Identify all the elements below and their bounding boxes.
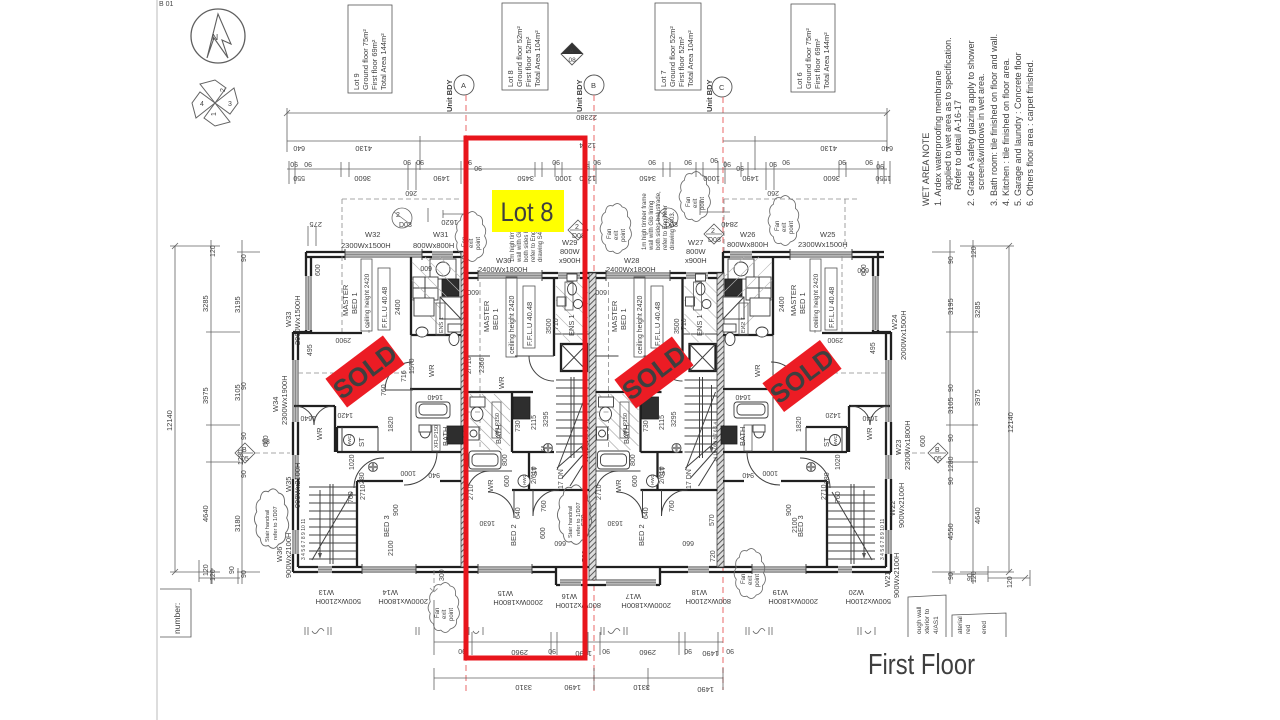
svg-text:570: 570 — [709, 514, 716, 526]
svg-text:1490: 1490 — [697, 685, 714, 694]
svg-text:22380: 22380 — [576, 113, 597, 122]
svg-text:12140: 12140 — [1006, 412, 1015, 433]
svg-text:BATH: BATH — [738, 427, 747, 446]
svg-text:1000: 1000 — [555, 174, 572, 183]
svg-text:D08: D08 — [708, 237, 721, 244]
svg-text:17 DN: 17 DN — [558, 469, 565, 489]
svg-text:3450: 3450 — [517, 174, 534, 183]
svg-text:W32: W32 — [365, 230, 380, 239]
svg-text:Fan: Fan — [775, 221, 781, 231]
svg-text:2900: 2900 — [335, 336, 351, 343]
svg-text:2400: 2400 — [779, 296, 786, 312]
svg-text:90: 90 — [474, 164, 482, 171]
svg-text:W31: W31 — [433, 230, 448, 239]
svg-text:1020: 1020 — [835, 454, 842, 470]
svg-text:500Wx2100H: 500Wx2100H — [316, 597, 361, 606]
svg-text:90: 90 — [948, 477, 955, 485]
svg-text:800Wx2100H: 800Wx2100H — [686, 597, 731, 606]
svg-text:640: 640 — [881, 144, 893, 151]
svg-text:2366: 2366 — [479, 357, 486, 373]
svg-text:120: 120 — [1007, 576, 1014, 588]
svg-text:point: point — [621, 229, 627, 242]
svg-text:2300Wx1900H: 2300Wx1900H — [280, 375, 289, 425]
svg-text:640: 640 — [515, 507, 522, 519]
svg-text:1: 1 — [211, 112, 218, 116]
svg-text:280: 280 — [824, 472, 831, 484]
svg-text:Lot 7: Lot 7 — [659, 70, 668, 87]
svg-text:3195: 3195 — [233, 296, 242, 313]
svg-text:760: 760 — [348, 491, 355, 503]
svg-text:point: point — [700, 197, 706, 210]
svg-text:300: 300 — [439, 569, 446, 581]
svg-text:Fan: Fan — [741, 574, 747, 584]
svg-text:Fan: Fan — [607, 229, 613, 239]
svg-text:3310: 3310 — [515, 683, 532, 692]
svg-text:both sides balustrade,: both sides balustrade, — [656, 191, 662, 250]
svg-text:BED 1: BED 1 — [491, 308, 500, 330]
svg-text:1630: 1630 — [479, 519, 495, 526]
svg-text:A: A — [461, 81, 466, 90]
svg-text:2000Wx1500H: 2000Wx1500H — [293, 295, 302, 345]
svg-text:900Wx2100H: 900Wx2100H — [293, 463, 302, 508]
svg-text:90: 90 — [552, 158, 560, 165]
svg-text:HWC: HWC — [650, 474, 655, 485]
svg-text:3975: 3975 — [201, 387, 210, 404]
svg-text:90: 90 — [726, 647, 734, 654]
svg-text:90: 90 — [736, 164, 744, 171]
svg-text:3: 3 — [228, 101, 232, 108]
svg-text:wall with Gib lining: wall with Gib lining — [649, 201, 655, 251]
svg-text:WR: WR — [497, 376, 506, 389]
svg-text:HWC: HWC — [833, 435, 838, 446]
svg-text:3 4 5 6 7 8 9 10 11: 3 4 5 6 7 8 9 10 11 — [301, 518, 307, 560]
svg-text:90: 90 — [948, 384, 955, 392]
svg-text:1820: 1820 — [388, 416, 395, 432]
svg-text:1820: 1820 — [796, 416, 803, 432]
svg-text:600: 600 — [467, 288, 479, 295]
svg-text:B: B — [935, 447, 940, 454]
svg-text:4550: 4550 — [946, 523, 955, 540]
svg-text:720: 720 — [710, 550, 717, 562]
svg-text:F.F.L.U 40.48: F.F.L.U 40.48 — [829, 287, 836, 328]
svg-text:90: 90 — [304, 160, 312, 167]
svg-text:90: 90 — [948, 256, 955, 264]
svg-text:760: 760 — [835, 491, 842, 503]
svg-text:600: 600 — [920, 435, 927, 447]
svg-text:W34: W34 — [271, 397, 280, 412]
svg-text:90: 90 — [967, 573, 974, 581]
svg-text:760: 760 — [381, 384, 388, 396]
svg-text:4130: 4130 — [355, 144, 372, 153]
svg-text:ough wall: ough wall — [916, 606, 923, 634]
svg-text:800: 800 — [502, 454, 509, 466]
svg-text:XFLP150: XFLP150 — [623, 413, 629, 436]
svg-text:W16: W16 — [562, 592, 577, 601]
svg-text:3. Bath room: tile finished: 3. Bath room: tile finished on floor and… — [989, 34, 999, 206]
svg-text:1640: 1640 — [735, 393, 751, 400]
svg-text:F.F.L.U 40.48: F.F.L.U 40.48 — [525, 302, 534, 346]
svg-text:W33: W33 — [284, 312, 293, 327]
svg-text:600: 600 — [315, 264, 322, 276]
svg-text:W22: W22 — [888, 501, 897, 516]
svg-text:W24: W24 — [890, 315, 899, 330]
svg-text:2: 2 — [220, 88, 227, 92]
svg-text:4130: 4130 — [820, 144, 837, 153]
svg-text:WR: WR — [865, 427, 874, 440]
svg-text:WR: WR — [427, 364, 436, 377]
svg-text:ENS 1: ENS 1 — [439, 317, 445, 333]
svg-text:4. Kitchen : tile finished o: 4. Kitchen : tile finished on floor area… — [1001, 58, 1011, 206]
svg-text:3285: 3285 — [201, 295, 210, 312]
svg-text:exit: exit — [442, 609, 448, 619]
svg-text:600: 600 — [420, 264, 432, 271]
svg-text:90: 90 — [416, 158, 424, 165]
svg-text:MASTER: MASTER — [482, 300, 491, 332]
svg-text:1284: 1284 — [579, 141, 596, 150]
svg-text:Total Area 104m²: Total Area 104m² — [686, 30, 695, 87]
svg-text:600: 600 — [504, 475, 511, 487]
svg-text:2400Wx1800H: 2400Wx1800H — [606, 265, 656, 274]
svg-text:WR: WR — [315, 427, 324, 440]
svg-text:500Wx2100H: 500Wx2100H — [846, 597, 891, 606]
svg-text:2300Wx1800H: 2300Wx1800H — [903, 420, 912, 470]
svg-text:B: B — [591, 81, 596, 90]
svg-text:1280: 1280 — [948, 456, 955, 472]
svg-text:3105: 3105 — [233, 384, 242, 401]
svg-text:05: 05 — [241, 456, 249, 463]
svg-text:x900H: x900H — [559, 256, 581, 265]
svg-text:800W: 800W — [686, 247, 707, 256]
svg-text:760: 760 — [669, 500, 676, 512]
svg-text:First floor 69m²: First floor 69m² — [813, 38, 822, 89]
svg-text:3975: 3975 — [973, 389, 982, 406]
svg-text:260: 260 — [405, 189, 417, 196]
svg-text:4640: 4640 — [973, 507, 982, 524]
svg-text:2710: 2710 — [360, 484, 367, 500]
svg-text:660: 660 — [682, 539, 694, 546]
svg-text:First floor 69m²: First floor 69m² — [370, 39, 379, 90]
svg-text:90: 90 — [648, 158, 656, 165]
svg-text:point: point — [789, 221, 795, 234]
svg-text:90: 90 — [241, 570, 248, 578]
svg-text:1220: 1220 — [579, 174, 596, 183]
svg-text:5. Garage and laundry : Con: 5. Garage and laundry : Concrete floor — [1013, 52, 1023, 206]
svg-text:1490: 1490 — [742, 174, 759, 183]
svg-text:3600: 3600 — [354, 174, 371, 183]
svg-text:90: 90 — [241, 470, 248, 478]
svg-text:MASTER: MASTER — [341, 284, 350, 316]
svg-text:640: 640 — [643, 507, 650, 519]
svg-text:Total Area 104m²: Total Area 104m² — [533, 30, 542, 87]
svg-text:W36: W36 — [275, 547, 284, 562]
svg-text:90: 90 — [684, 647, 692, 654]
svg-text:Total Area 144m²: Total Area 144m² — [379, 33, 388, 90]
svg-text:Lot 8: Lot 8 — [501, 197, 554, 227]
svg-text:3105: 3105 — [946, 397, 955, 414]
svg-text:90: 90 — [241, 432, 248, 440]
svg-text:W14: W14 — [383, 588, 398, 597]
svg-text:1570: 1570 — [409, 358, 416, 374]
svg-text:Lot 9: Lot 9 — [352, 73, 361, 90]
svg-text:aterial: aterial — [957, 616, 964, 634]
svg-text:2900: 2900 — [827, 336, 843, 343]
svg-text:2115: 2115 — [531, 415, 538, 430]
svg-text:2960: 2960 — [639, 648, 656, 657]
svg-text:W23: W23 — [894, 440, 903, 455]
svg-text:HWC: HWC — [347, 435, 352, 446]
svg-text:F.F.L.U 40.48: F.F.L.U 40.48 — [382, 287, 389, 328]
svg-text:2000Wx1800H: 2000Wx1800H — [621, 601, 671, 610]
svg-text:2400Wx1800H: 2400Wx1800H — [478, 265, 528, 274]
svg-text:280: 280 — [359, 472, 366, 484]
svg-text:HWC: HWC — [522, 474, 527, 485]
svg-text:point: point — [476, 237, 482, 250]
svg-text:90: 90 — [602, 647, 610, 654]
svg-text:BED 1: BED 1 — [350, 292, 359, 314]
svg-text:Ground floor 75m²: Ground floor 75m² — [804, 28, 813, 89]
svg-text:760: 760 — [541, 500, 548, 512]
svg-text:2710: 2710 — [596, 484, 603, 500]
svg-text:W26: W26 — [740, 230, 755, 239]
svg-text:900Wx2100H: 900Wx2100H — [897, 483, 906, 528]
svg-text:600: 600 — [595, 288, 607, 295]
svg-text:2400: 2400 — [395, 299, 402, 315]
svg-text:2000Wx1800H: 2000Wx1800H — [768, 597, 818, 606]
svg-text:2: 2 — [575, 224, 579, 231]
svg-text:exit: exit — [782, 222, 788, 232]
svg-text:xterior to: xterior to — [924, 608, 931, 634]
svg-text:6. Others floor area : carp: 6. Others floor area : carpet finished. — [1025, 60, 1035, 206]
svg-text:90: 90 — [241, 254, 248, 262]
svg-text:90: 90 — [290, 160, 298, 167]
svg-text:screen&windows in wet area.: screen&windows in wet area. — [976, 73, 986, 190]
svg-text:WR: WR — [486, 479, 495, 492]
svg-text:4: 4 — [200, 101, 204, 108]
svg-text:2000Wx1500H: 2000Wx1500H — [899, 310, 908, 360]
svg-text:number:: number: — [172, 603, 182, 634]
svg-text:First floor 52m²: First floor 52m² — [677, 36, 686, 87]
svg-text:MASTER: MASTER — [610, 300, 619, 332]
svg-text:XFLP150: XFLP150 — [434, 425, 440, 448]
svg-text:x900H: x900H — [685, 256, 707, 265]
svg-text:exit: exit — [748, 575, 754, 585]
svg-text:90: 90 — [684, 158, 692, 165]
svg-text:3500: 3500 — [546, 318, 553, 334]
svg-text:90: 90 — [241, 382, 248, 390]
svg-text:4/AS1: 4/AS1 — [933, 616, 940, 634]
svg-text:1550: 1550 — [875, 174, 891, 181]
svg-text:BED 1: BED 1 — [798, 292, 807, 314]
svg-text:660: 660 — [554, 539, 566, 546]
svg-text:800Wx800H: 800Wx800H — [413, 241, 454, 250]
svg-text:BATH: BATH — [441, 427, 450, 446]
svg-text:Fan: Fan — [686, 197, 692, 207]
svg-text:BED 3: BED 3 — [382, 515, 391, 537]
svg-text:1020: 1020 — [349, 454, 356, 470]
svg-text:Ground floor 75m²: Ground floor 75m² — [361, 29, 370, 90]
svg-text:Lot 6: Lot 6 — [795, 72, 804, 89]
svg-text:90: 90 — [723, 160, 731, 167]
svg-text:2300Wx1500H: 2300Wx1500H — [798, 240, 848, 249]
svg-text:W28: W28 — [624, 256, 639, 265]
svg-text:12140: 12140 — [165, 410, 174, 431]
svg-text:3600: 3600 — [823, 174, 840, 183]
svg-text:Unit BDY: Unit BDY — [575, 80, 584, 113]
svg-text:600: 600 — [540, 527, 547, 539]
svg-text:900Wx2100H: 900Wx2100H — [284, 533, 293, 578]
svg-text:W25: W25 — [820, 230, 835, 239]
svg-text:3180: 3180 — [233, 515, 242, 532]
svg-text:ST: ST — [357, 437, 366, 447]
svg-text:1620: 1620 — [441, 218, 458, 227]
svg-text:W18: W18 — [692, 588, 707, 597]
svg-text:800W: 800W — [560, 247, 581, 256]
svg-text:90: 90 — [948, 434, 955, 442]
svg-text:90: 90 — [876, 162, 884, 169]
svg-text:refer to 1/D07: refer to 1/D07 — [576, 502, 582, 536]
svg-text:716: 716 — [401, 370, 408, 382]
svg-text:W27: W27 — [688, 238, 703, 247]
svg-text:550: 550 — [293, 174, 305, 181]
svg-text:800Wx2100H: 800Wx2100H — [556, 601, 601, 610]
svg-text:600: 600 — [861, 264, 868, 276]
svg-text:drawing S403.: drawing S403. — [670, 211, 676, 250]
svg-text:2115: 2115 — [659, 415, 666, 430]
svg-text:98: 98 — [262, 439, 270, 446]
svg-text:2: 2 — [396, 212, 400, 219]
svg-text:ENS 1: ENS 1 — [567, 314, 576, 336]
svg-text:495: 495 — [870, 342, 877, 354]
svg-text:Stair handrail: Stair handrail — [265, 510, 271, 542]
svg-text:3285: 3285 — [973, 301, 982, 318]
svg-text:ceiling height 2420: ceiling height 2420 — [813, 273, 820, 328]
svg-text:17 DN: 17 DN — [686, 469, 693, 489]
svg-text:2100: 2100 — [792, 517, 799, 533]
svg-text:ST: ST — [822, 437, 831, 447]
svg-text:900Wx2100H: 900Wx2100H — [892, 553, 901, 598]
svg-text:640: 640 — [293, 144, 305, 151]
svg-text:08: 08 — [569, 57, 577, 64]
svg-text:2. Grade A safety glazing ap: 2. Grade A safety glazing apply to showe… — [966, 40, 976, 206]
svg-text:W19: W19 — [773, 588, 788, 597]
svg-text:W21: W21 — [883, 572, 892, 587]
svg-text:Unit BDY: Unit BDY — [445, 80, 454, 113]
svg-text:ceiling height 2420: ceiling height 2420 — [637, 296, 644, 354]
svg-text:800Wx800H: 800Wx800H — [727, 240, 768, 249]
svg-text:exit: exit — [469, 238, 475, 248]
svg-text:2710: 2710 — [468, 484, 475, 500]
svg-text:3 4 5 6 7 8 9 10 11: 3 4 5 6 7 8 9 10 11 — [880, 518, 886, 560]
svg-text:Stair handrail: Stair handrail — [568, 506, 574, 538]
svg-text:1490: 1490 — [564, 683, 581, 692]
svg-text:1640: 1640 — [300, 414, 316, 421]
svg-text:800: 800 — [630, 454, 637, 466]
svg-text:SA: SA — [541, 445, 547, 452]
svg-text:First floor 52m²: First floor 52m² — [524, 36, 533, 87]
svg-text:1. Ardex waterproofing membr: 1. Ardex waterproofing membrane — [933, 70, 943, 206]
svg-text:BED 2: BED 2 — [509, 524, 518, 546]
svg-text:90: 90 — [710, 156, 718, 163]
svg-text:90: 90 — [782, 158, 790, 165]
svg-text:90: 90 — [865, 158, 873, 165]
svg-text:1490: 1490 — [433, 174, 450, 183]
svg-text:F.F.L.U 40.48: F.F.L.U 40.48 — [653, 302, 662, 346]
svg-text:120: 120 — [203, 564, 210, 576]
svg-text:W13: W13 — [319, 588, 334, 597]
svg-text:3295: 3295 — [543, 411, 550, 427]
svg-text:940: 940 — [742, 471, 754, 478]
svg-text:W20: W20 — [849, 588, 864, 597]
svg-text:point: point — [755, 574, 761, 587]
svg-text:710: 710 — [681, 318, 688, 330]
svg-text:1640: 1640 — [862, 414, 878, 421]
svg-text:BED 2: BED 2 — [637, 524, 646, 546]
svg-text:1m high timber frame: 1m high timber frame — [642, 193, 648, 250]
svg-text:4640: 4640 — [201, 505, 210, 522]
svg-text:2710: 2710 — [821, 484, 828, 500]
svg-text:2300Wx1500H: 2300Wx1500H — [341, 241, 391, 250]
svg-text:3450: 3450 — [639, 174, 656, 183]
svg-text:90: 90 — [593, 158, 601, 165]
svg-text:2/610: 2/610 — [531, 466, 538, 484]
svg-text:ENS 1: ENS 1 — [695, 314, 704, 336]
svg-text:1420: 1420 — [825, 411, 841, 418]
svg-text:C: C — [719, 83, 725, 92]
svg-text:Refer to detail A-16-17: Refer to detail A-16-17 — [953, 100, 963, 190]
svg-text:ceiling height 2420: ceiling height 2420 — [509, 296, 516, 354]
svg-text:N: N — [212, 32, 218, 42]
svg-text:1000: 1000 — [400, 469, 416, 476]
svg-text:BED 1: BED 1 — [619, 308, 628, 330]
svg-text:ered: ered — [981, 621, 988, 634]
svg-text:1420: 1420 — [337, 411, 353, 418]
svg-text:W15: W15 — [498, 589, 513, 598]
svg-text:120: 120 — [210, 569, 217, 581]
svg-text:1640: 1640 — [427, 393, 443, 400]
svg-text:120: 120 — [210, 245, 217, 257]
svg-text:3295: 3295 — [671, 411, 678, 427]
svg-text:WET AREA NOTE: WET AREA NOTE — [921, 133, 931, 206]
svg-text:90: 90 — [403, 158, 411, 165]
svg-text:Ground floor 52m²: Ground floor 52m² — [515, 26, 524, 87]
svg-text:exit: exit — [614, 230, 620, 240]
svg-text:2/610: 2/610 — [659, 466, 666, 484]
svg-text:260: 260 — [767, 189, 779, 196]
svg-text:W35: W35 — [284, 477, 293, 492]
svg-text:600: 600 — [632, 475, 639, 487]
svg-text:A: A — [570, 49, 574, 55]
svg-text:2100: 2100 — [388, 540, 395, 556]
svg-text:D03: D03 — [399, 222, 412, 229]
svg-text:WR: WR — [753, 364, 762, 377]
svg-text:refer to Engineer: refer to Engineer — [663, 205, 669, 250]
svg-text:Fan: Fan — [435, 608, 441, 618]
svg-text:940: 940 — [428, 471, 440, 478]
svg-text:exit: exit — [693, 198, 699, 208]
svg-text:refer to 1/D07: refer to 1/D07 — [273, 506, 279, 540]
svg-text:3195: 3195 — [946, 298, 955, 315]
svg-text:XFLP150: XFLP150 — [495, 413, 501, 436]
svg-text:B: B — [242, 447, 247, 454]
svg-text:90: 90 — [548, 647, 556, 654]
svg-text:applied to wet area as to spec: applied to wet area as to specification. — [943, 37, 953, 190]
svg-text:3500: 3500 — [674, 318, 681, 334]
svg-text:First Floor: First Floor — [868, 649, 975, 681]
svg-text:120: 120 — [971, 246, 978, 258]
svg-text:Ground floor 52m²: Ground floor 52m² — [668, 26, 677, 87]
svg-text:05: 05 — [934, 456, 942, 463]
svg-text:Lot 8: Lot 8 — [506, 70, 515, 87]
